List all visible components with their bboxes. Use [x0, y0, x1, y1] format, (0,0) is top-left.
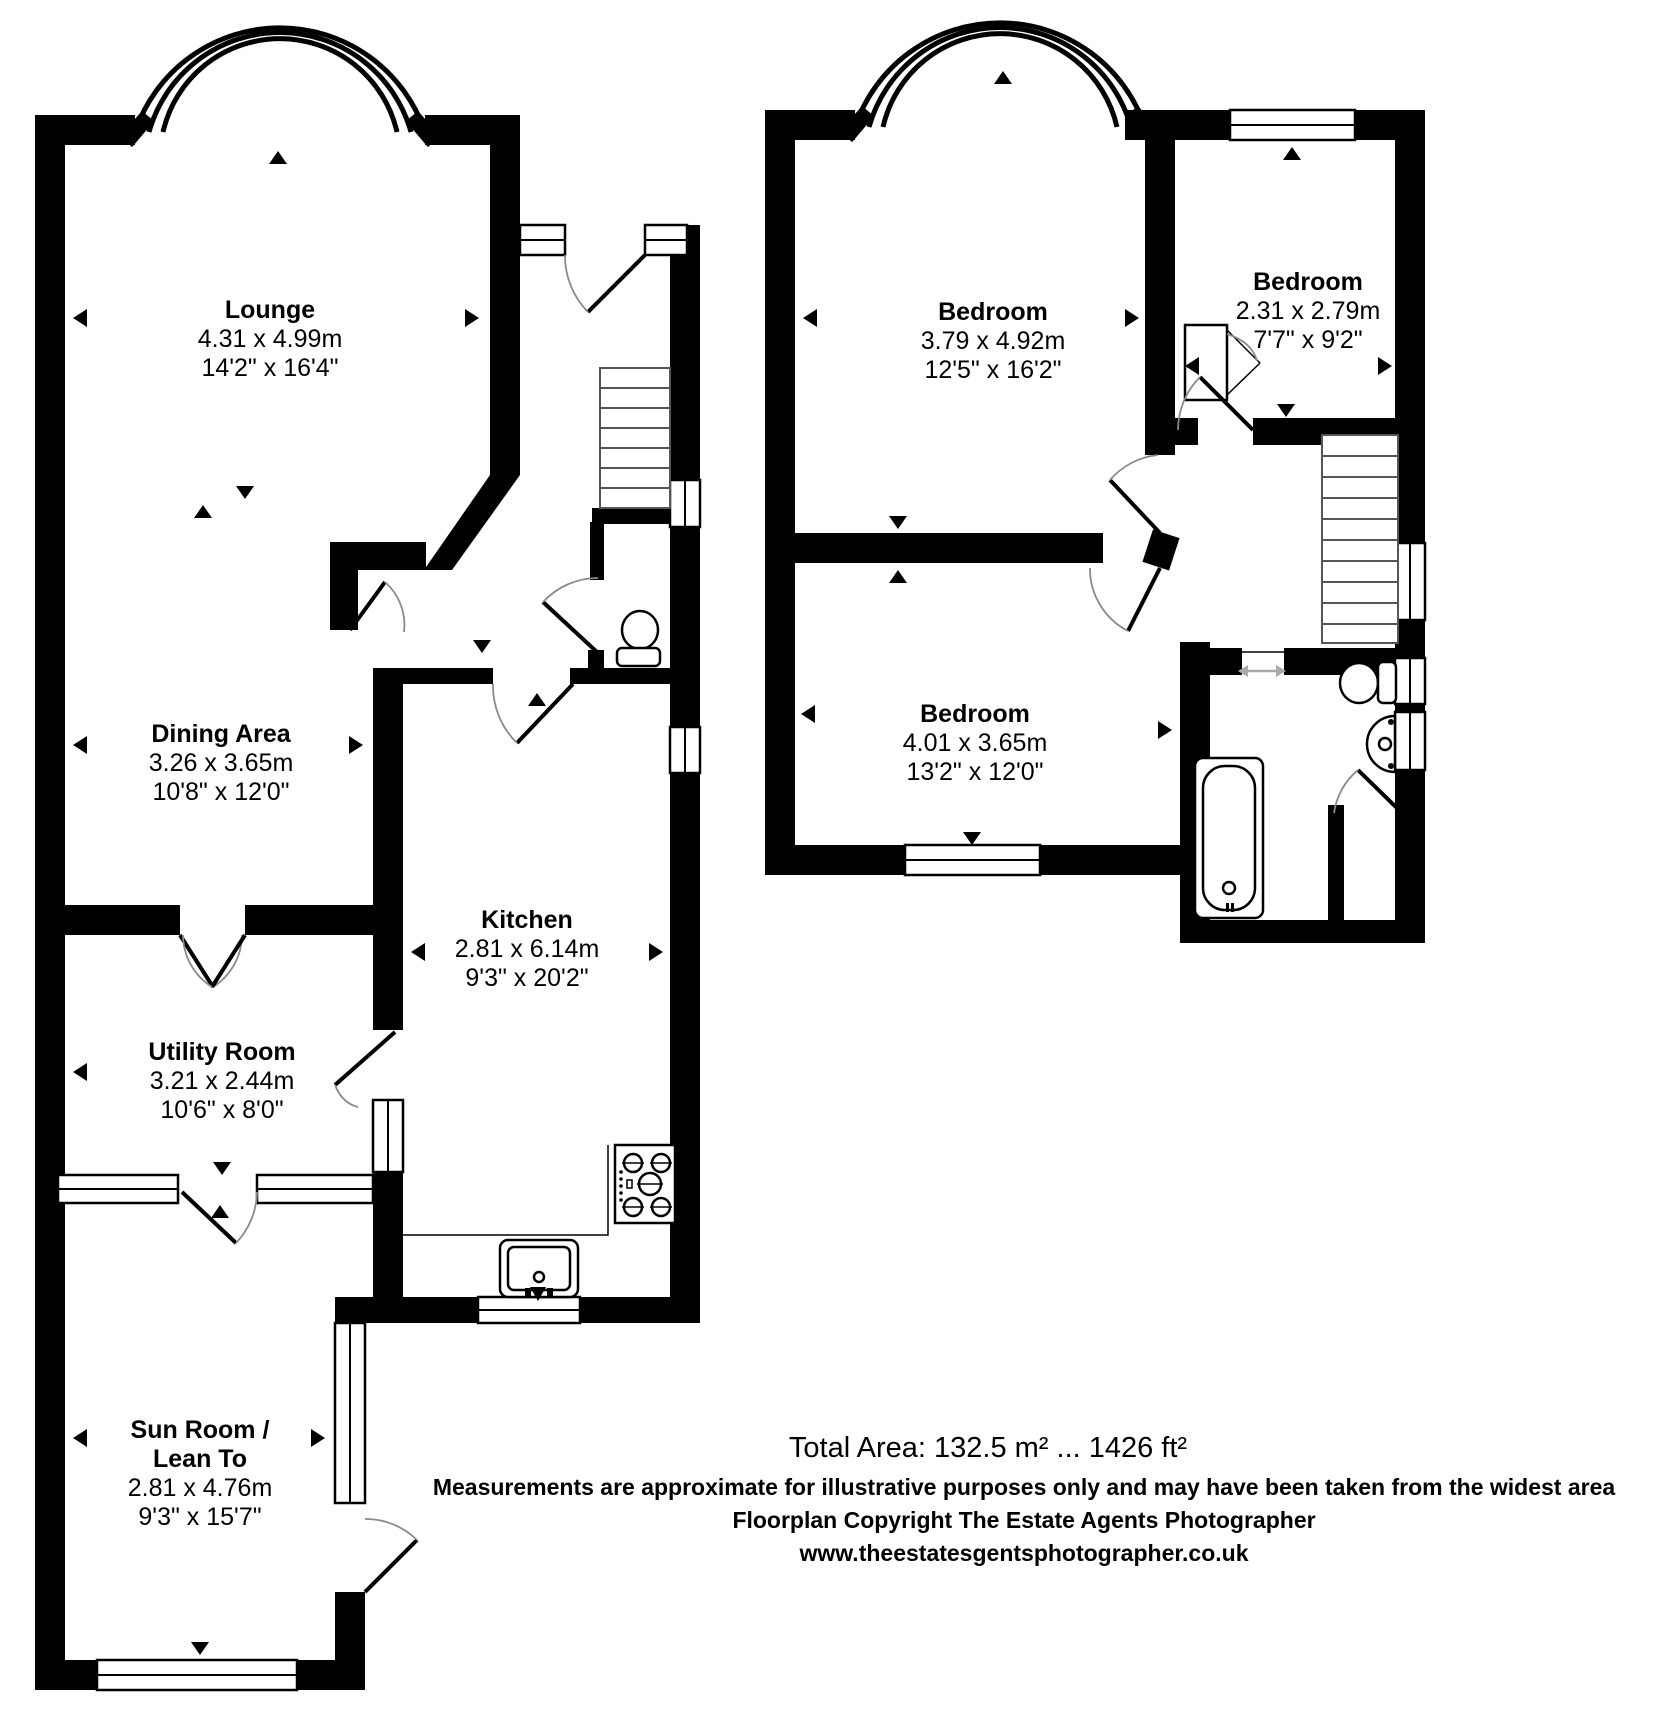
room-label-dining-area: Dining Area 3.26 x 3.65m 10'8" x 12'0" [149, 720, 294, 807]
room-size-imperial: 14'2" x 16'4" [198, 354, 343, 383]
stove-icon [615, 1145, 675, 1223]
room-name: Lounge [198, 296, 343, 325]
room-label-utility-room: Utility Room 3.21 x 2.44m 10'6" x 8'0" [148, 1038, 295, 1125]
dimension-markers [801, 71, 1392, 845]
stairs-icon [600, 368, 670, 508]
stairs-icon [1322, 435, 1398, 643]
room-size-metric: 3.79 x 4.92m [921, 327, 1066, 356]
room-name: Dining Area [149, 720, 294, 749]
room-name-line2: Lean To [128, 1445, 273, 1474]
bathtub-icon [1195, 758, 1263, 918]
room-label-lounge: Lounge 4.31 x 4.99m 14'2" x 16'4" [198, 296, 343, 383]
room-size-imperial: 12'5" x 16'2" [921, 356, 1066, 385]
website-text: www.theestatesgentsphotographer.co.uk [799, 1540, 1248, 1567]
room-size-imperial: 7'7" x 9'2" [1236, 326, 1381, 355]
room-name: Utility Room [148, 1038, 295, 1067]
room-name: Bedroom [903, 700, 1048, 729]
room-size-imperial: 9'3" x 20'2" [455, 964, 600, 993]
room-label-bedroom-3: Bedroom 4.01 x 3.65m 13'2" x 12'0" [903, 700, 1048, 787]
room-label-bedroom-1: Bedroom 3.79 x 4.92m 12'5" x 16'2" [921, 298, 1066, 385]
room-size-metric: 2.81 x 6.14m [455, 935, 600, 964]
room-name: Sun Room / [128, 1416, 273, 1445]
room-size-metric: 4.01 x 3.65m [903, 729, 1048, 758]
counter-line [403, 1145, 608, 1235]
first-floor-plan [765, 23, 1425, 943]
room-size-imperial: 9'3" x 15'7" [128, 1503, 273, 1532]
room-size-imperial: 10'6" x 8'0" [148, 1096, 295, 1125]
kitchen-sink-icon [500, 1240, 578, 1301]
room-size-metric: 4.31 x 4.99m [198, 325, 343, 354]
sink-icon [1367, 716, 1395, 772]
toilet-icon [1340, 662, 1396, 703]
total-area-text: Total Area: 132.5 m² ... 1426 ft² [789, 1432, 1187, 1465]
room-name: Kitchen [455, 906, 600, 935]
disclaimer-text: Measurements are approximate for illustr… [433, 1474, 1615, 1501]
room-size-metric: 3.21 x 2.44m [148, 1067, 295, 1096]
copyright-text: Floorplan Copyright The Estate Agents Ph… [732, 1507, 1315, 1534]
toilet-icon [617, 611, 660, 666]
room-size-imperial: 13'2" x 12'0" [903, 758, 1048, 787]
room-label-kitchen: Kitchen 2.81 x 6.14m 9'3" x 20'2" [455, 906, 600, 993]
room-size-imperial: 10'8" x 12'0" [149, 778, 294, 807]
room-label-sun-room: Sun Room / Lean To 2.81 x 4.76m 9'3" x 1… [128, 1416, 273, 1532]
room-size-metric: 3.26 x 3.65m [149, 749, 294, 778]
room-size-metric: 2.31 x 2.79m [1236, 297, 1381, 326]
floorplan-page: Lounge 4.31 x 4.99m 14'2" x 16'4" Dining… [0, 0, 1660, 1724]
bay-window-icon [126, 28, 434, 142]
room-name: Bedroom [1236, 268, 1381, 297]
room-name: Bedroom [921, 298, 1066, 327]
room-size-metric: 2.81 x 4.76m [128, 1474, 273, 1503]
room-label-bedroom-2: Bedroom 2.31 x 2.79m 7'7" x 9'2" [1236, 268, 1381, 355]
